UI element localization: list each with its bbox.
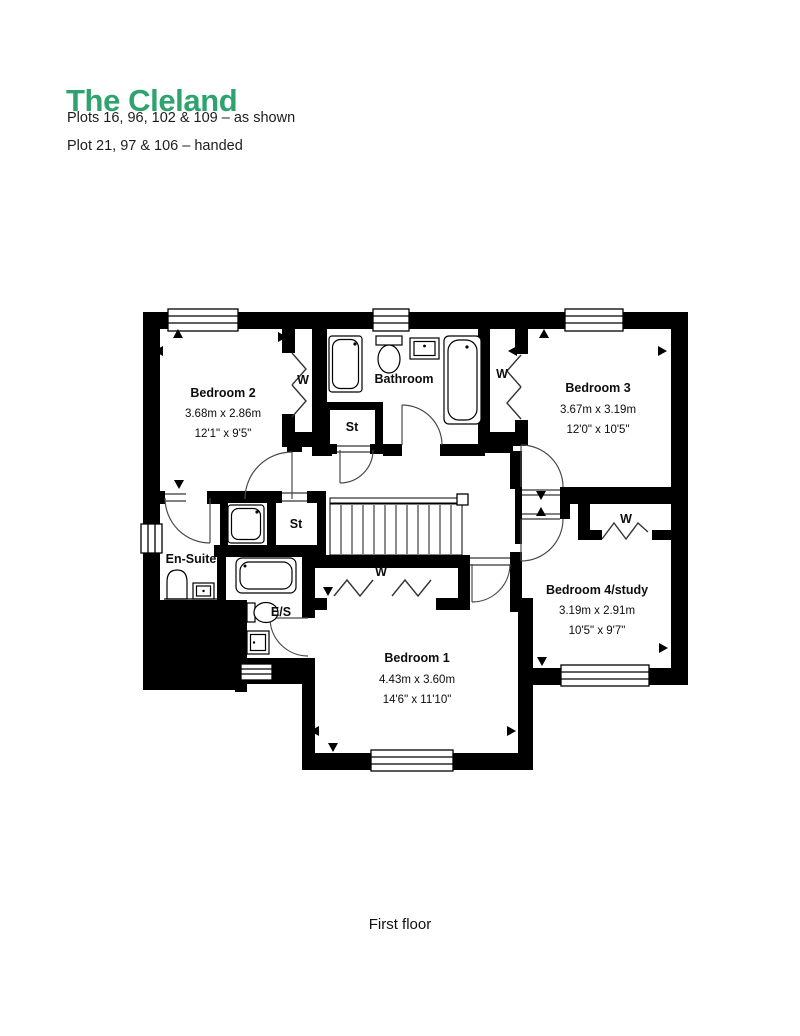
- bedroom1-door: [472, 564, 510, 602]
- es-toilet: [247, 603, 278, 623]
- floor-name: First floor: [0, 916, 800, 933]
- ensuite-sink: [193, 583, 214, 599]
- arrow-right-icon: [507, 726, 516, 736]
- bedroom1-window: [371, 750, 453, 771]
- es-door: [270, 618, 308, 656]
- ensuite-door: [165, 498, 210, 543]
- bathroom-toilet: [376, 336, 402, 373]
- bedroom4-hanging-rail: [602, 523, 648, 539]
- es-sink: [247, 631, 269, 654]
- ensuite-toilet: [167, 570, 187, 599]
- bathroom-sink: [410, 338, 439, 359]
- bathroom-window: [373, 309, 409, 331]
- arrow-up-icon: [539, 329, 549, 338]
- arrow-right-icon: [659, 643, 668, 653]
- bedroom3-door: [521, 445, 563, 487]
- arrow-up-icon: [536, 507, 546, 516]
- bathroom-door: [402, 405, 442, 445]
- es-window: [241, 664, 272, 680]
- storage-top-door: [340, 450, 373, 483]
- brochure-page: The Cleland Plots 16, 96, 102 & 109 – as…: [0, 0, 800, 1036]
- arrow-down-icon: [323, 587, 333, 596]
- ensuite-shower: [228, 505, 264, 543]
- arrow-down-icon: [328, 743, 338, 752]
- stair-handrail: [330, 498, 457, 503]
- bedroom4-window: [561, 665, 649, 686]
- arrow-down-icon: [536, 491, 546, 500]
- floor-plan: Bedroom 2 3.68m x 2.86m 12'1" x 9'5" Bat…: [140, 302, 690, 782]
- ensuite-window: [141, 524, 162, 553]
- arrow-down-icon: [537, 657, 547, 666]
- stairs: [330, 494, 468, 555]
- bathroom-bath: [444, 336, 481, 424]
- bedroom3-window: [565, 309, 623, 331]
- bedroom1-hanging-rails: [334, 580, 431, 596]
- es-bath: [236, 558, 296, 593]
- plots-as-shown-text: Plots 16, 96, 102 & 109 – as shown: [67, 110, 295, 126]
- arrow-left-icon: [508, 346, 517, 356]
- bedroom2-window: [168, 309, 238, 331]
- stair-newel: [457, 494, 468, 505]
- bedroom2-closet-doors: [292, 353, 306, 417]
- arrow-down-icon: [174, 480, 184, 489]
- arrow-right-icon: [658, 346, 667, 356]
- bedroom3-closet-doors: [507, 355, 521, 419]
- floorplan-drawing: [140, 302, 690, 782]
- bedroom4-door: [521, 519, 563, 561]
- bathroom-shower: [329, 336, 362, 392]
- plots-handed-text: Plot 21, 97 & 106 – handed: [67, 138, 243, 154]
